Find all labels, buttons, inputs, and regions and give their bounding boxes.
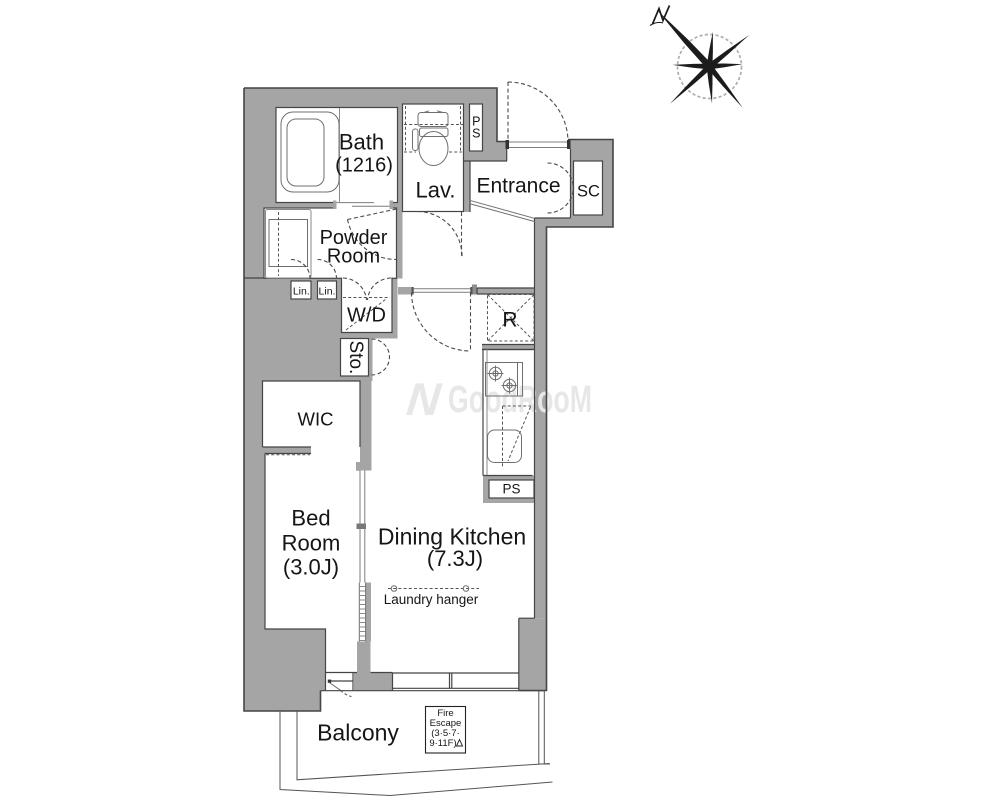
svg-text:Room: Room (327, 246, 380, 268)
svg-text:Room: Room (282, 531, 341, 556)
svg-text:9·11F): 9·11F) (429, 738, 456, 749)
svg-text:Bath: Bath (339, 130, 384, 155)
svg-text:Bed: Bed (291, 506, 330, 531)
svg-text:(1216): (1216) (335, 155, 393, 177)
svg-text:Laundry hanger: Laundry hanger (384, 592, 479, 607)
svg-text:GoodRooM: GoodRooM (448, 379, 592, 421)
svg-text:(7.3J): (7.3J) (427, 546, 483, 571)
svg-text:PS: PS (502, 482, 520, 497)
svg-text:Sto.: Sto. (345, 341, 366, 375)
svg-text:W/D: W/D (347, 305, 386, 327)
svg-text:Lin.: Lin. (293, 286, 310, 298)
svg-text:Entrance: Entrance (476, 175, 560, 198)
svg-text:WIC: WIC (298, 409, 334, 430)
svg-text:S: S (472, 127, 480, 141)
svg-text:Balcony: Balcony (317, 720, 399, 746)
svg-text:(3.0J): (3.0J) (283, 555, 339, 580)
svg-text:Lav.: Lav. (416, 178, 456, 203)
svg-text:Lin.: Lin. (319, 286, 336, 298)
svg-text:R: R (502, 309, 517, 332)
svg-text:SC: SC (577, 183, 600, 201)
